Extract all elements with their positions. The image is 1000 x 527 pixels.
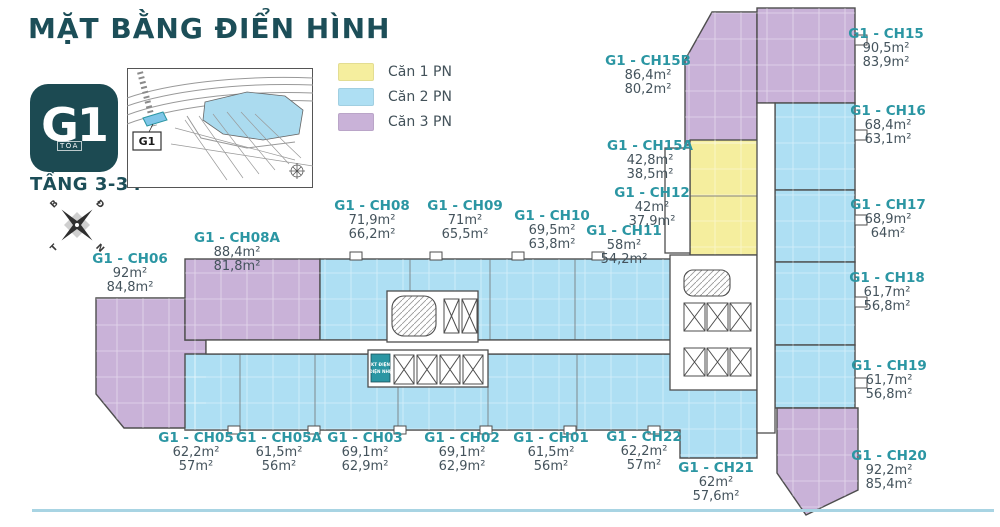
wing-corridor (757, 103, 775, 433)
bottom-divider (32, 509, 994, 512)
page-title: MẶT BẰNG ĐIỂN HÌNH (28, 12, 390, 45)
legend-swatch-1pn (338, 63, 374, 81)
legend-label-2pn: Căn 2 PN (388, 89, 452, 105)
legend-swatch-3pn (338, 113, 374, 131)
legend-swatch-2pn (338, 88, 374, 106)
bar-stair (392, 296, 436, 336)
compass-letter-north: B (49, 199, 61, 211)
legend: Căn 1 PN Căn 2 PN Căn 3 PN (338, 64, 452, 139)
legend-item-1pn: Căn 1 PN (338, 64, 452, 80)
wing-service-rooms (665, 148, 690, 253)
floor-plan-page: KT ĐIỆN ĐIỆN NHẸ MẶT BẰNG ĐIỂN HÌNH G1 T… (0, 0, 1000, 527)
tower-badge: G1 TÒA (30, 84, 118, 172)
legend-item-2pn: Căn 2 PN (338, 89, 452, 105)
site-map: G1 (127, 68, 313, 188)
wing-stair (684, 270, 730, 296)
technical-room: KT ĐIỆN ĐIỆN NHẸ (369, 354, 392, 382)
legend-item-3pn: Căn 3 PN (338, 114, 452, 130)
legend-label-1pn: Căn 1 PN (388, 64, 452, 80)
site-map-g1-label: G1 (139, 135, 156, 148)
compass-rose: B Đ T N (46, 192, 108, 254)
legend-label-3pn: Căn 3 PN (388, 114, 452, 130)
compass-letter-east: Đ (93, 198, 106, 211)
technical-room-label-line1: KT ĐIỆN (371, 362, 390, 367)
compass-letter-south: N (93, 242, 105, 254)
compass-center (75, 223, 79, 227)
tower-badge-toa-label: TÒA (57, 141, 82, 151)
compass-letter-west: T (49, 242, 61, 254)
technical-room-label-line2: ĐIỆN NHẸ (369, 369, 392, 374)
